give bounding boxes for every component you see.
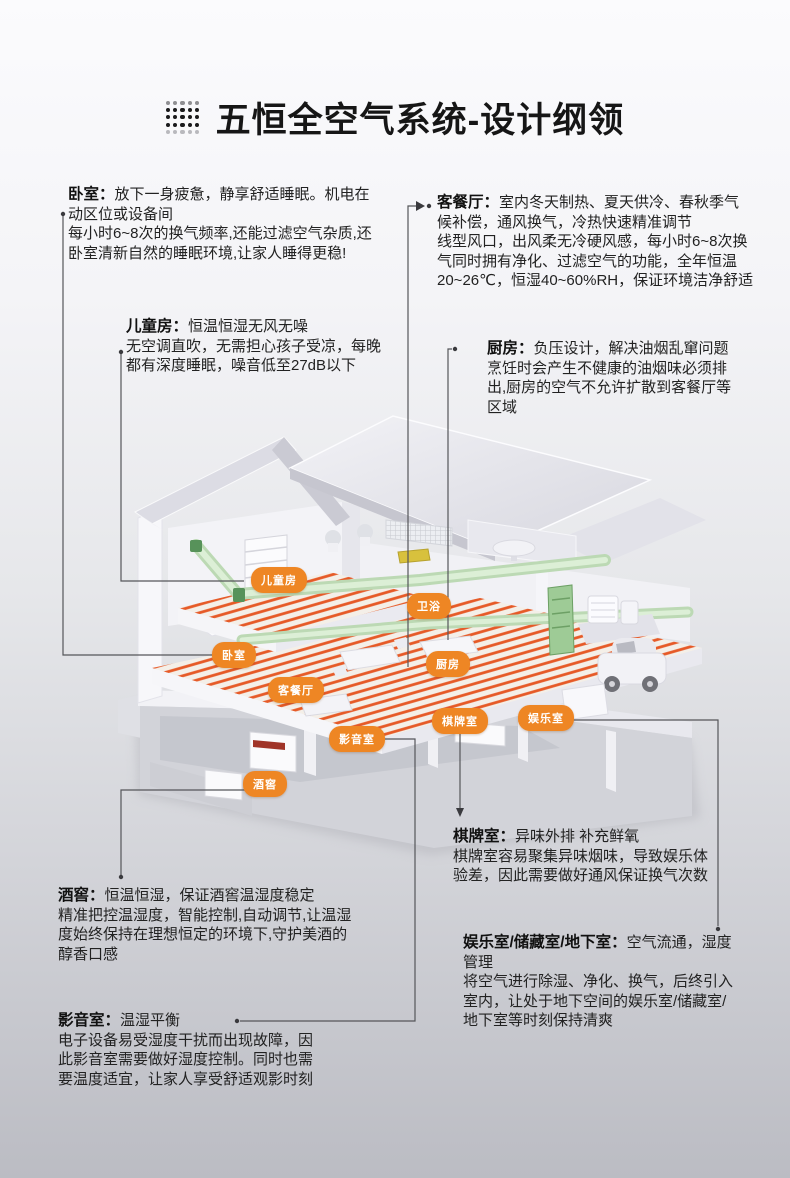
callout-wine-cellar: 酒窖：恒温恒湿，保证酒窖温湿度稳定 精准把控温湿度，智能控制,自动调节,让温湿 … bbox=[58, 886, 438, 964]
callout-kitchen: 厨房：负压设计，解决油烟乱窜问题 烹饪时会产生不健康的油烟味必须排 出,厨房的空… bbox=[487, 339, 787, 417]
callout-bedroom-text: 放下一身疲惫，静享舒适睡眠。机电在 动区位或设备间 每小时6~8次的换气频率,还… bbox=[68, 186, 372, 262]
callout-bedroom: 卧室：放下一身疲惫，静享舒适睡眠。机电在 动区位或设备间 每小时6~8次的换气频… bbox=[68, 185, 438, 263]
room-label-wine-cellar: 酒窖 bbox=[243, 771, 287, 797]
callout-home-theater-title: 影音室： bbox=[58, 1012, 120, 1029]
connector-kitchen bbox=[448, 349, 452, 640]
car bbox=[612, 638, 656, 662]
callout-living-dining: 客餐厅：室内冬天制热、夏天供冷、春秋季气 候补偿，通风换气，冷热快速精准调节 线… bbox=[437, 193, 787, 291]
callout-home-theater: 影音室：温湿平衡 电子设备易受湿度干扰而出现故障，因 此影音室需要做好湿度控制。… bbox=[58, 1011, 418, 1089]
callout-chess-room: 棋牌室：异味外排 补充鲜氧 棋牌室容易聚集异味烟味，导致娱乐体 验差，因此需要做… bbox=[453, 827, 790, 886]
room-label-kitchen: 厨房 bbox=[426, 651, 470, 677]
air-duct-lower bbox=[242, 612, 688, 640]
room-label-living-dining: 客餐厅 bbox=[268, 677, 324, 703]
room-label-home-theater: 影音室 bbox=[329, 726, 385, 752]
callout-entertainment-title: 娱乐室/储藏室/地下室： bbox=[463, 934, 627, 951]
connector-bedroom bbox=[63, 214, 212, 655]
room-label-bathroom: 卫浴 bbox=[407, 593, 451, 619]
room-label-bedroom: 卧室 bbox=[212, 642, 256, 668]
page-title: 五恒全空气系统-设计纲领 bbox=[216, 92, 625, 143]
connector-wine-cellar bbox=[121, 790, 246, 875]
poster-page: 五恒全空气系统-设计纲领 儿童房 卫浴 卧室 厨房 客餐厅 影音室 棋牌室 娱乐… bbox=[0, 0, 790, 1178]
ventilation-unit bbox=[548, 585, 574, 655]
connector-entertainment bbox=[565, 720, 718, 926]
callout-kids-room-title: 儿童房： bbox=[126, 318, 188, 335]
callout-kitchen-title: 厨房： bbox=[487, 340, 534, 357]
callout-entertainment: 娱乐室/储藏室/地下室：空气流通，湿度 管理 将空气进行除湿、净化、换气，后终引… bbox=[463, 933, 790, 1031]
rooftop-table bbox=[493, 540, 535, 556]
connector-kids-room bbox=[121, 352, 244, 581]
outdoor-ac-unit bbox=[588, 596, 618, 623]
callout-kids-room: 儿童房：恒温恒湿无风无噪 无空调直吹，无需担心孩子受凉，每晚 都有深度睡眠，噪音… bbox=[126, 317, 471, 376]
callout-bedroom-title: 卧室： bbox=[68, 186, 115, 203]
main-roof bbox=[290, 416, 650, 550]
room-label-chess-room: 棋牌室 bbox=[432, 708, 488, 734]
callout-chess-room-title: 棋牌室： bbox=[453, 828, 515, 845]
header: 五恒全空气系统-设计纲领 bbox=[0, 92, 790, 143]
callout-wine-cellar-title: 酒窖： bbox=[58, 887, 105, 904]
callout-living-dining-title: 客餐厅： bbox=[437, 194, 499, 211]
room-label-entertainment: 娱乐室 bbox=[518, 705, 574, 731]
dot-grid-icon bbox=[166, 101, 200, 135]
room-label-kids-room: 儿童房 bbox=[251, 567, 307, 593]
